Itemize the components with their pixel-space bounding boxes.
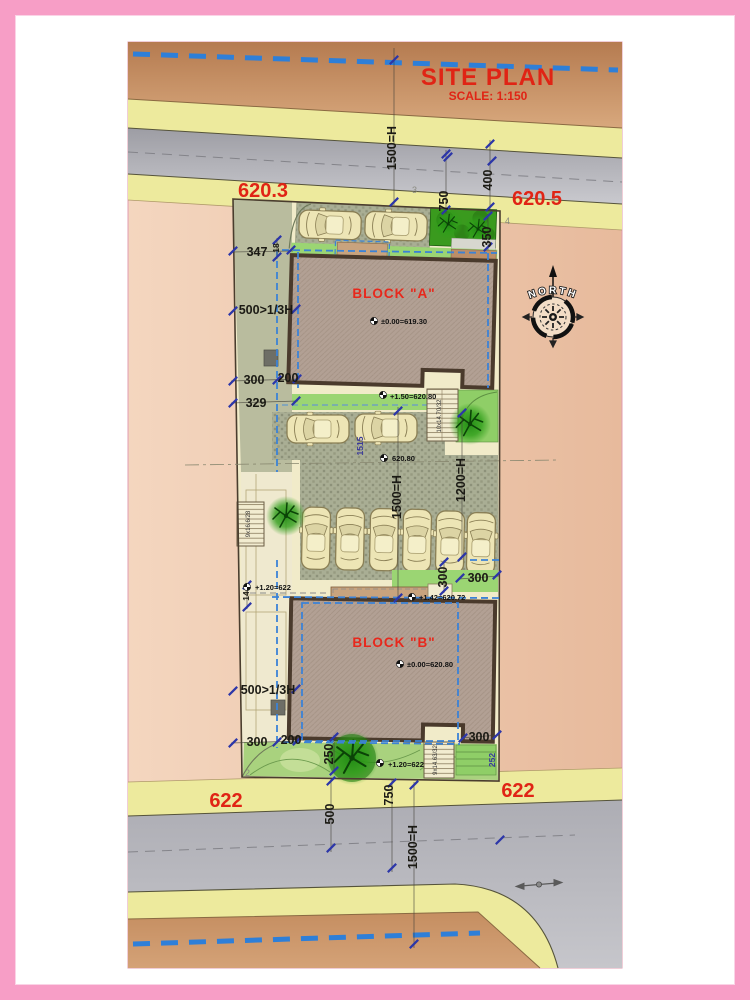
block-a-level: ±0.00=619.30	[381, 317, 427, 326]
dim-300-b-right: 300	[469, 730, 490, 744]
dim-200-b: 200	[281, 733, 302, 747]
dim-side-gap-a: 500>1/3H	[239, 303, 294, 317]
dim-1515: 1515	[355, 436, 365, 455]
dim-1500h-top: 1500=H	[385, 126, 399, 170]
corner-point-2: 2	[245, 768, 250, 778]
dim-750-top: 750	[437, 191, 451, 212]
spot-level-below-a: +1.50=620.80	[390, 392, 436, 401]
site-plan-drawing: NORTH SITE PLAN SCALE: 1:150 620.3 620.5…	[0, 0, 750, 1000]
dim-300-mid-h: 300	[468, 571, 489, 585]
dim-250: 250	[322, 744, 336, 765]
dim-300-mid-v: 300	[436, 567, 450, 588]
block-a-label: BLOCK "A"	[352, 286, 435, 301]
dim-14: 14	[241, 591, 251, 601]
dim-350: 350	[480, 227, 494, 248]
corner-point-4: 4	[505, 216, 510, 226]
top-parking-row	[289, 203, 499, 263]
page-scale: SCALE: 1:150	[449, 89, 528, 103]
dim-side-gap-b: 500>1/3H	[241, 683, 296, 697]
dim-18: 18	[271, 243, 281, 253]
street-level-bottom-right: 622	[501, 780, 534, 802]
spot-level-court: 620.80	[392, 454, 415, 463]
stairs-label-below-b: 9x14.63/32	[433, 744, 439, 774]
dim-500-bottom: 500	[323, 804, 337, 825]
spot-level-above-b: +1.42=620.72	[419, 593, 465, 602]
car	[287, 412, 349, 446]
dim-300-a: 300	[244, 373, 265, 387]
spot-level-left-court: +1.20=622	[255, 583, 291, 592]
dim-750-bottom: 750	[382, 785, 396, 806]
street-level-top-right: 620.5	[512, 188, 562, 210]
dim-1200h: 1200=H	[454, 458, 468, 502]
spot-level-garden: +1.20=622	[388, 760, 424, 769]
car	[364, 208, 427, 244]
block-b	[289, 598, 495, 742]
dim-252: 252	[487, 753, 497, 767]
page-title: SITE PLAN	[421, 64, 555, 91]
corner-point-3: 3	[412, 185, 417, 195]
car	[333, 508, 368, 571]
bottom-street	[128, 768, 622, 968]
dim-front-setback: 347	[247, 245, 268, 259]
car	[463, 512, 498, 575]
stairs-below-b	[424, 742, 454, 778]
dim-1500h-bottom: 1500=H	[406, 825, 420, 869]
car	[299, 207, 362, 243]
tree	[449, 403, 491, 445]
dim-300-b: 300	[247, 735, 268, 749]
dim-329: 329	[246, 396, 267, 410]
tree	[266, 496, 306, 536]
dim-1500h-mid: 1500=H	[390, 475, 404, 519]
car	[400, 509, 435, 572]
dim-200-a: 200	[278, 371, 299, 385]
dim-400: 400	[481, 170, 495, 191]
street-level-bottom-left: 622	[209, 790, 242, 812]
block-b-level: ±0.00=620.80	[407, 660, 453, 669]
stairs-label-court-left: 9x16.6/28	[246, 510, 252, 537]
street-level-top-left: 620.3	[238, 180, 288, 202]
site-plan-page: NORTH SITE PLAN SCALE: 1:150 620.3 620.5…	[0, 0, 750, 1000]
stairs-label-below-a: 10x14.70/32	[437, 399, 443, 433]
block-b-label: BLOCK "B"	[352, 635, 435, 650]
